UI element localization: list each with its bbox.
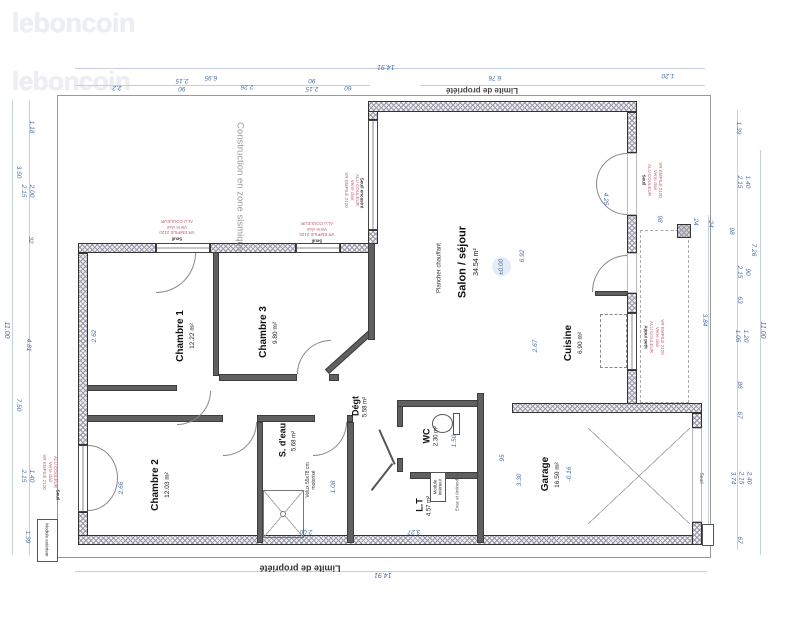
dim-left-5: 4.81	[24, 339, 32, 352]
dim-right-7: 3.84	[700, 314, 708, 327]
dim-left-7: 1.40 2.15	[19, 470, 35, 483]
wall-exterior	[78, 243, 156, 253]
dim-right-10: 86	[735, 381, 743, 388]
floor-plan-sheet: leboncoin leboncoin	[0, 0, 800, 630]
leboncoin-logo-bottom: leboncoin	[12, 66, 130, 97]
room-label-chambre1: Chambre 1	[175, 310, 187, 362]
window-spec-chambre2: ALU COULEUR Verre clair VR EMPILÉ 2120	[42, 454, 58, 489]
wall-exterior	[368, 230, 378, 244]
seismic-note: Construction en zone sismique	[234, 122, 245, 252]
room-area-cuisine: 6.90 m²	[577, 332, 585, 354]
dim-right-9: 11.00	[758, 322, 766, 339]
room-label-wc: WC	[422, 429, 433, 444]
dim-line	[708, 215, 709, 545]
wall-exterior	[78, 512, 88, 536]
dim-inner-bottom1: 2.00	[300, 527, 313, 535]
dim-right-11: 67	[735, 411, 743, 418]
wall-interior	[397, 400, 480, 407]
dim-inner-chambre1: 2.62	[91, 330, 99, 343]
wall-exterior	[627, 112, 637, 153]
room-area-chambre3: 9.80 m²	[272, 322, 280, 344]
room-label-sdeau: S. d'eau	[278, 423, 289, 457]
dim-right-4: 7.26	[749, 244, 757, 257]
wall-interior	[410, 472, 483, 479]
dim-inner-porch1: 98	[655, 215, 663, 222]
wall-interior	[219, 374, 297, 381]
dim-right-1: 1.40 2.15	[735, 176, 751, 189]
bay-window-salon	[368, 120, 378, 230]
wall-exterior	[627, 215, 637, 253]
dim-top-6: 60	[344, 83, 351, 91]
dim-left-1: 3.50	[14, 166, 22, 179]
dim-right-6: 63	[735, 296, 743, 303]
wall-interior	[347, 422, 354, 543]
room-label-garage: Garage	[540, 457, 552, 491]
appui-petit-label: Appui petit	[643, 325, 648, 349]
room-label-salon: Salon / séjour	[456, 226, 469, 298]
room-area-degt: 5.58 m²	[362, 397, 369, 417]
garage-threshold	[702, 524, 714, 546]
wall-interior	[87, 415, 223, 422]
wall-interior	[87, 385, 177, 391]
module-exterieur-label: Module extérieur	[44, 523, 49, 557]
dim-inner-wc2: 1.50	[451, 435, 459, 448]
seuil-label-french-door: Seuil	[641, 175, 646, 186]
limite-propriete-bottom: Limite de propriété	[259, 563, 340, 574]
dim-inner-hall: 1.08	[330, 481, 338, 494]
seuil-label-chambre2: Seuil	[55, 490, 60, 501]
dim-right-13: 67	[735, 536, 743, 543]
window-chambre1	[156, 243, 210, 253]
floor-heating-note: Plancher chauffant	[436, 243, 443, 293]
dim-left-4: 11.00	[2, 322, 10, 339]
dim-top-8: 1.20	[662, 71, 675, 79]
side-door-opening	[627, 253, 637, 293]
wall-exterior	[340, 243, 369, 253]
limite-propriete-top: Limite de propriété	[446, 85, 518, 95]
dim-top-7: 6.76	[489, 73, 502, 81]
dim-inner-wc1: 95	[499, 454, 507, 461]
level-garage: -0.16	[566, 467, 574, 482]
wall-interior	[257, 415, 315, 422]
room-area-garage: 16.50 m²	[554, 462, 562, 488]
dim-top-3: 6.95	[205, 73, 218, 81]
dim-right-12: 2.40 2.15 3.74	[729, 472, 752, 485]
shower-drain	[280, 511, 286, 517]
dim-left-3: 32	[26, 236, 34, 243]
window-spec-french-door: VR EMPILÉ 2120 Verre clair ALU COULEUR	[647, 162, 663, 197]
dim-top-overall: 14.91	[377, 62, 395, 70]
wall-exterior	[210, 243, 296, 253]
window-spec-chambre1: VR EMPILÉ 2120 Verre clair ALU COULEUR	[159, 219, 194, 235]
porch-post	[677, 224, 691, 238]
room-area-chambre1: 12.22 m²	[189, 323, 197, 349]
dim-inner-porch2: 24	[691, 218, 699, 225]
room-area-chambre2: 12.03 m²	[164, 472, 172, 498]
window-spec-chambre3: VR EMPILÉ 2120 Verre clair ALU COULEUR	[299, 221, 334, 237]
room-label-lt: L.T	[415, 498, 426, 512]
kitchen-units-dashed	[600, 314, 627, 368]
level-salon: ±0.00	[498, 259, 506, 275]
room-area-salon: 34.54 m²	[473, 248, 481, 276]
wall-exterior	[692, 522, 702, 545]
wall-exterior	[627, 293, 637, 313]
room-area-wc: 2.30 m²	[433, 426, 440, 446]
dim-left-2: 2.00 2.15	[19, 185, 35, 198]
dim-top-5: 2.15 90	[306, 76, 319, 92]
wall-exterior-garage-top	[512, 403, 702, 413]
room-label-chambre3: Chambre 3	[258, 306, 270, 358]
wall-interior	[329, 374, 339, 381]
dim-line	[12, 100, 13, 555]
dim-line	[760, 150, 761, 555]
wall-exterior	[78, 535, 703, 545]
wall-interior	[477, 393, 484, 543]
dim-right-5: 90 2.15	[735, 266, 751, 279]
seuil-label-chambre1: Seuil	[172, 236, 183, 241]
room-label-cuisine: Cuisine	[563, 325, 575, 361]
dim-inner-cuisine: 2.67	[532, 340, 540, 353]
wall-interior	[347, 415, 353, 422]
wall-exterior	[692, 413, 702, 428]
window-chambre3	[296, 243, 340, 253]
carport-dashed-outline	[640, 230, 689, 403]
dim-inner-bottom2: 3.27	[408, 527, 421, 535]
window-spec-bay: ALU COULEUR Verre clair VR EMPILÉ 2120	[344, 172, 360, 207]
dim-right-3: 98	[727, 227, 735, 234]
dim-right-8: 1.20 1.05	[733, 330, 749, 343]
seuil-label-chambre3: Seuil	[312, 238, 323, 243]
dim-inner-salon: 6.92	[519, 250, 527, 263]
dim-top-2: 90 2.15	[176, 76, 189, 92]
wall-interior	[368, 243, 375, 340]
module-interieur-label: Module intérieur	[433, 479, 444, 495]
seuil-encastre-label: Seuil encastré	[359, 178, 364, 209]
dim-top-1: 2.2	[112, 83, 121, 91]
wall-interior	[213, 252, 219, 376]
dim-left-6: 7.50	[14, 399, 22, 412]
toilet-tank	[453, 413, 460, 435]
dim-right-0: 1.39	[734, 122, 742, 135]
window-spec-cuisine: VR EMPILÉ 2120 Verre clair ALU COULEUR	[649, 319, 665, 354]
leboncoin-logo-top: leboncoin	[12, 8, 135, 39]
dim-inner-door: 4.25	[601, 193, 609, 206]
seuil-label-garage: Seuil	[698, 472, 704, 483]
window-cuisine	[627, 313, 637, 370]
velux-label: Velux 55x78 cm motorisé	[305, 462, 317, 497]
garage-door-swing	[588, 428, 690, 524]
evac-label: Evac et Arr/module	[454, 473, 459, 511]
wall-exterior	[368, 101, 637, 112]
dim-inner-chambre2: 2.66	[118, 482, 126, 495]
french-door-opening	[627, 153, 637, 215]
dim-inner-garage: 3.30	[516, 474, 524, 487]
room-label-chambre2: Chambre 2	[150, 459, 162, 511]
dim-bottom-overall: 14.91	[374, 570, 392, 578]
room-area-lt: 4.57 m²	[426, 496, 433, 516]
window-chambre2	[78, 445, 88, 512]
wall-interior	[397, 458, 403, 472]
dim-left-8: 1.39	[23, 531, 31, 544]
dim-right-2: 24	[706, 220, 714, 227]
dim-left-0: 1.18	[27, 121, 35, 134]
dim-top-4: 2.26	[241, 82, 254, 90]
room-label-degt: Dégt	[351, 396, 362, 416]
room-area-sdeau: 5.68 m²	[291, 431, 298, 451]
dim-line	[29, 100, 30, 555]
